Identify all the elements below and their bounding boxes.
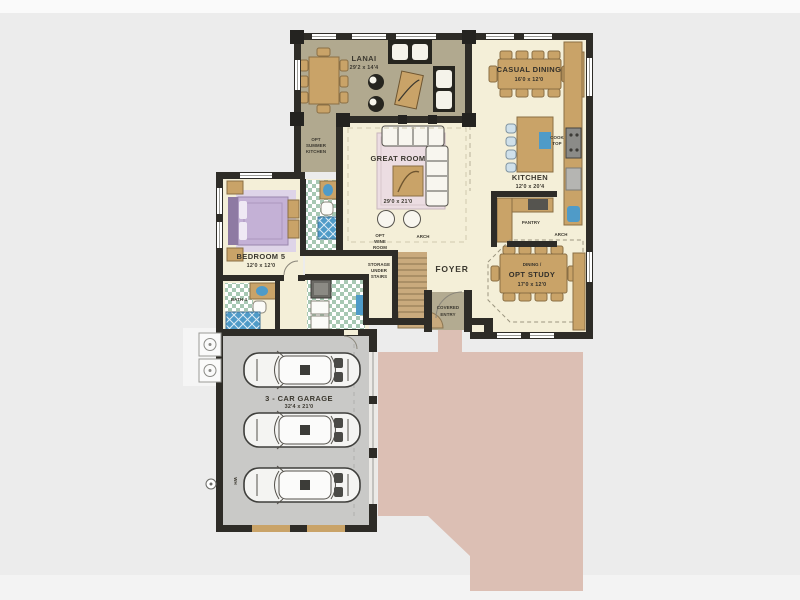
bedroom5-label: BEDROOM 5 bbox=[236, 252, 285, 261]
storage-under-stairs-2: UNDER bbox=[371, 268, 388, 273]
lanai-dims: 29'2 x 14'4 bbox=[350, 65, 379, 71]
cook-top-label-2: TOP bbox=[552, 141, 561, 146]
car-1 bbox=[244, 351, 360, 389]
garage-dims: 32'4 x 21'0 bbox=[285, 404, 314, 410]
dining-label-2: OPT STUDY bbox=[509, 270, 556, 279]
armchair bbox=[378, 211, 395, 228]
opt-summer-kitchen-1: OPT bbox=[311, 137, 321, 142]
oven bbox=[566, 168, 581, 190]
garage-window bbox=[252, 525, 290, 532]
toilet bbox=[321, 202, 333, 215]
car-2 bbox=[244, 411, 360, 449]
casual-dining-label: CASUAL DINING bbox=[497, 65, 562, 74]
bar-stool bbox=[506, 124, 516, 133]
entry-walkway bbox=[438, 330, 462, 354]
photo-bottom-band bbox=[0, 575, 800, 600]
kitchen-label: KITCHEN bbox=[512, 173, 548, 182]
washer bbox=[311, 301, 329, 314]
bar-stool bbox=[506, 137, 516, 146]
garage-label: 3 - CAR GARAGE bbox=[265, 394, 333, 403]
foyer-label: FOYER bbox=[435, 264, 468, 274]
storage-under-stairs-3: STAIRS bbox=[371, 274, 387, 279]
bedroom5-dims: 12'0 x 12'0 bbox=[247, 263, 276, 269]
covered-entry-label-2: ENTRY bbox=[440, 312, 455, 317]
dining-table bbox=[498, 59, 561, 89]
floor-plan-page: LANAI 29'2 x 14'4 CASUAL DINING 16'0 x 1… bbox=[0, 0, 800, 600]
opt-summer-kitchen-3: KITCHEN bbox=[306, 149, 326, 154]
pillow bbox=[239, 201, 247, 219]
dresser bbox=[288, 200, 299, 218]
casual-dining-dims: 16'0 x 12'0 bbox=[515, 77, 544, 83]
dresser bbox=[288, 220, 299, 238]
opt-wine-room-1: OPT bbox=[375, 233, 385, 238]
opt-wine-room-3: ROOM bbox=[373, 245, 387, 250]
pillow bbox=[239, 222, 247, 240]
opt-wine-room-2: WINE bbox=[374, 239, 386, 244]
garage-window bbox=[307, 525, 345, 532]
cook-top-label-1: COOK bbox=[550, 135, 564, 140]
storage-under-stairs-1: STORAGE bbox=[368, 262, 390, 267]
kitchen-dims: 12'0 x 20'4 bbox=[516, 184, 545, 190]
outdoor-dining-table bbox=[309, 57, 339, 104]
bath4-label: BATH 4 bbox=[231, 297, 248, 302]
cooktop bbox=[566, 128, 581, 158]
great-room-dims: 29'0 x 21'0 bbox=[384, 199, 413, 205]
garage-contents bbox=[244, 344, 360, 518]
shower bbox=[318, 217, 337, 239]
kitchen-sink bbox=[567, 206, 580, 222]
dining-label-1: DINING / bbox=[523, 262, 542, 267]
bar-stool bbox=[506, 163, 516, 172]
study-cabinet bbox=[573, 253, 585, 330]
floor-plan-drawing: LANAI 29'2 x 14'4 CASUAL DINING 16'0 x 1… bbox=[0, 0, 800, 600]
toilet bbox=[253, 301, 266, 313]
bar-stool bbox=[506, 150, 516, 159]
covered-entry-label-1: COVERED bbox=[437, 305, 459, 310]
island-sink bbox=[539, 132, 551, 149]
range bbox=[528, 199, 548, 210]
dining-dims: 17'0 x 12'0 bbox=[518, 282, 547, 288]
bedroom5-furniture bbox=[227, 181, 299, 261]
lanai-label: LANAI bbox=[352, 54, 377, 63]
arch-label-2: ARCH bbox=[554, 232, 567, 237]
wh-label: WH bbox=[233, 477, 238, 485]
great-room-label: GREAT ROOM bbox=[370, 154, 425, 163]
opt-summer-kitchen-2: SUMMER bbox=[306, 143, 327, 148]
dryer bbox=[311, 316, 329, 329]
headboard bbox=[228, 197, 238, 245]
car-3 bbox=[244, 466, 360, 504]
pantry-label: PANTRY bbox=[522, 220, 540, 225]
arch-label-1: ARCH bbox=[416, 234, 429, 239]
nightstand bbox=[227, 181, 243, 194]
armchair bbox=[404, 211, 421, 228]
